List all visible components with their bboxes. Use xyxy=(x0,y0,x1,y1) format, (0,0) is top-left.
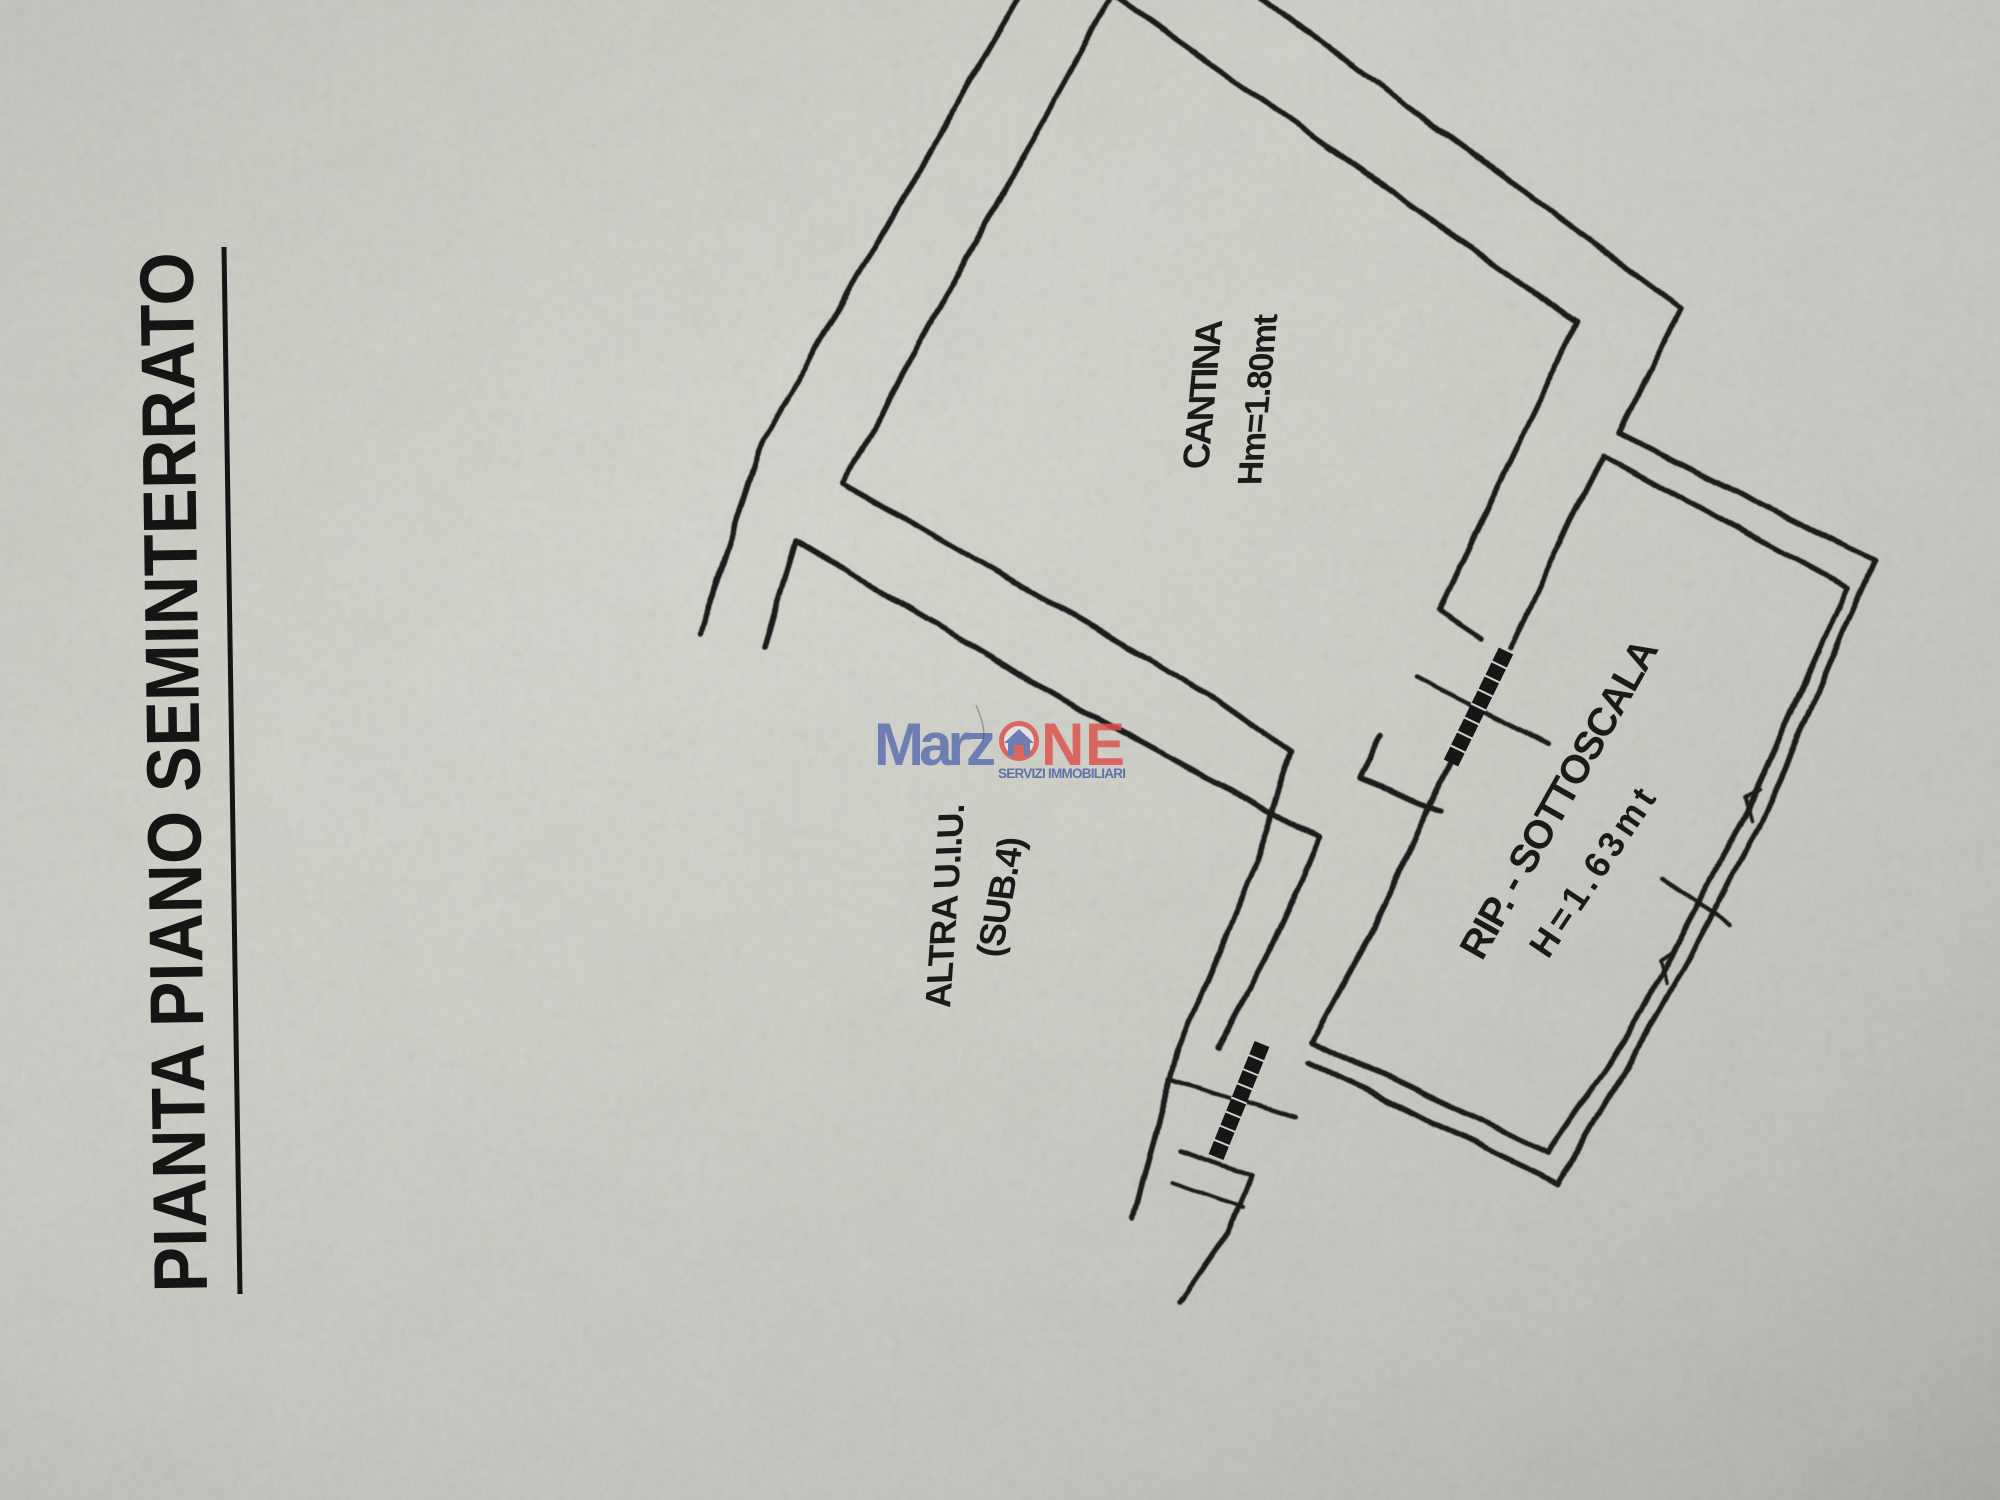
svg-text:PIANTA PIANO SEMINTERRATO: PIANTA PIANO SEMINTERRATO xyxy=(124,252,224,1293)
svg-text:Marz: Marz xyxy=(874,711,996,778)
svg-text:SERVIZI IMMOBILIARI: SERVIZI IMMOBILIARI xyxy=(998,766,1126,781)
